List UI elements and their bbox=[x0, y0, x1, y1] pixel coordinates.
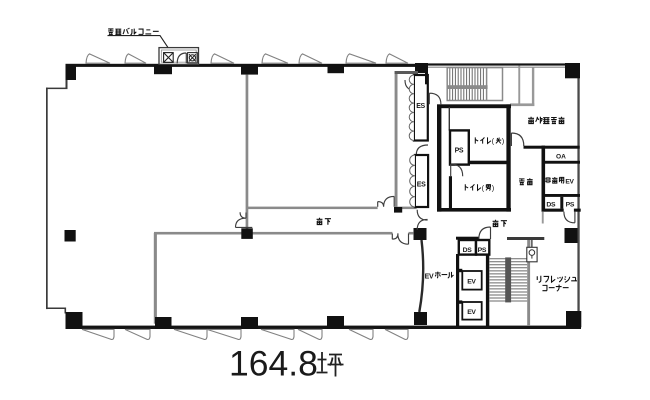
svg-text:PS: PS bbox=[566, 202, 575, 209]
svg-text:DS: DS bbox=[463, 247, 473, 254]
svg-text:ES: ES bbox=[416, 103, 425, 110]
svg-text:EV: EV bbox=[425, 273, 434, 280]
svg-text:EV: EV bbox=[467, 309, 476, 316]
svg-text:OA: OA bbox=[556, 153, 566, 160]
svg-text:164.8: 164.8 bbox=[229, 344, 318, 384]
svg-text:ES: ES bbox=[417, 182, 426, 189]
svg-text:DS: DS bbox=[546, 202, 556, 209]
svg-text:PS: PS bbox=[455, 147, 464, 154]
svg-text:PS: PS bbox=[478, 247, 487, 254]
svg-text:EV: EV bbox=[565, 179, 574, 186]
svg-text:EV: EV bbox=[467, 278, 476, 285]
